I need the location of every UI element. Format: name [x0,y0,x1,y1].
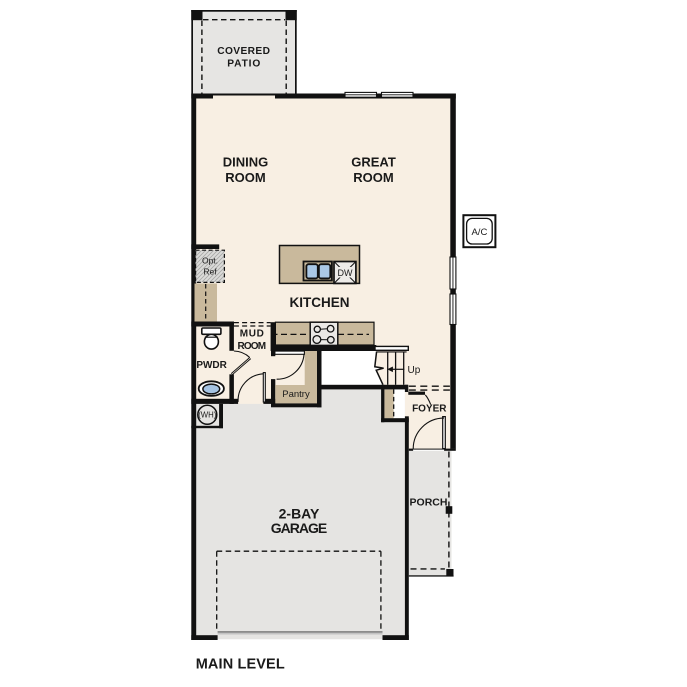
svg-text:MAIN LEVEL: MAIN LEVEL [196,657,285,673]
svg-text:MUD: MUD [240,328,264,339]
svg-text:ROOM: ROOM [238,341,266,352]
svg-text:Ref: Ref [203,267,217,277]
svg-text:PATIO: PATIO [227,58,260,69]
svg-text:KITCHEN: KITCHEN [290,295,350,310]
svg-text:Up: Up [408,365,421,376]
svg-text:A/C: A/C [471,227,487,238]
svg-text:(WH): (WH) [198,411,217,420]
svg-text:DINING: DINING [223,155,269,170]
svg-text:DW: DW [338,268,353,278]
svg-text:FOYER: FOYER [412,403,447,414]
svg-text:COVERED: COVERED [217,46,270,57]
svg-text:ROOM: ROOM [353,170,393,185]
svg-text:GARAGE: GARAGE [271,520,328,536]
svg-text:Pantry: Pantry [282,389,310,400]
svg-text:GREAT: GREAT [351,155,396,170]
svg-text:PORCH: PORCH [410,496,448,508]
svg-text:PWDR: PWDR [196,360,227,371]
svg-text:Opt.: Opt. [202,256,218,266]
svg-text:ROOM: ROOM [225,170,265,185]
